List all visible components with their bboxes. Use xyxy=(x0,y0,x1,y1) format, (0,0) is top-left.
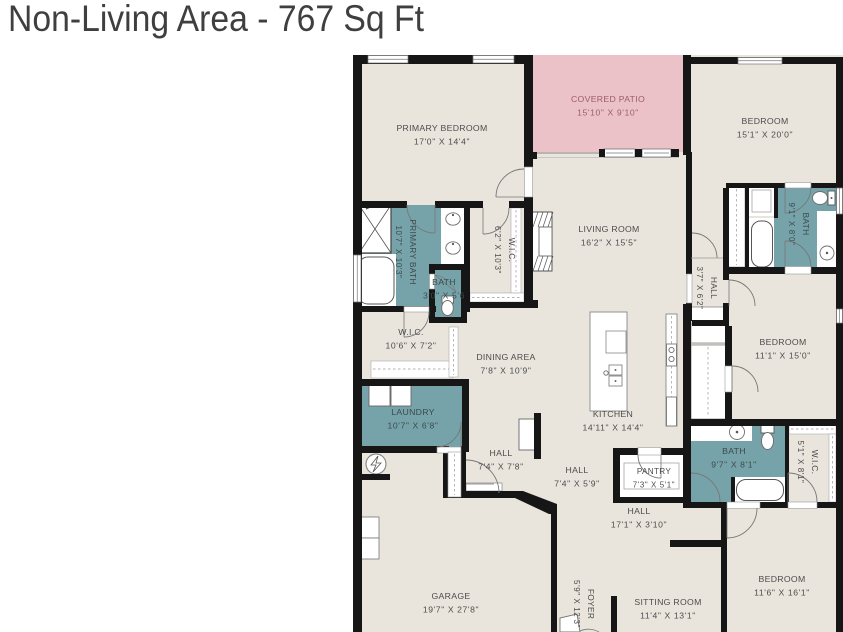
svg-text:9'1" X 8'0": 9'1" X 8'0" xyxy=(787,203,796,246)
svg-text:BEDROOM: BEDROOM xyxy=(760,337,807,347)
svg-text:15'1" X 20'0": 15'1" X 20'0" xyxy=(737,130,793,140)
svg-text:3'7" X 6'2": 3'7" X 6'2" xyxy=(695,267,704,310)
svg-text:16'2" X 15'5": 16'2" X 15'5" xyxy=(581,238,637,248)
svg-text:BATH: BATH xyxy=(432,277,456,287)
svg-text:LIVING ROOM: LIVING ROOM xyxy=(578,224,639,234)
svg-text:Non-Living Area - 767 Sq Ft: Non-Living Area - 767 Sq Ft xyxy=(8,0,425,39)
svg-text:HALL: HALL xyxy=(490,448,513,458)
svg-text:KITCHEN: KITCHEN xyxy=(593,409,633,419)
svg-text:14'11" X 14'4": 14'11" X 14'4" xyxy=(582,423,643,433)
svg-text:PRIMARY BATH: PRIMARY BATH xyxy=(408,219,418,285)
svg-text:9'7" X 8'1": 9'7" X 8'1" xyxy=(711,460,757,470)
svg-text:COVERED PATIO: COVERED PATIO xyxy=(571,94,645,104)
svg-text:FOYER: FOYER xyxy=(586,589,596,619)
svg-text:7'8" X 10'9": 7'8" X 10'9" xyxy=(481,366,532,376)
svg-text:3'0" X 5'6: 3'0" X 5'6 xyxy=(423,291,465,301)
svg-text:17'1" X 3'10": 17'1" X 3'10" xyxy=(611,520,667,530)
svg-text:W.I.C.: W.I.C. xyxy=(398,327,423,337)
svg-text:10'6" X 7'2": 10'6" X 7'2" xyxy=(386,341,437,351)
svg-text:11'4" X 13'1": 11'4" X 13'1" xyxy=(640,611,696,621)
svg-text:7'3" X 5'1": 7'3" X 5'1" xyxy=(633,481,675,490)
svg-text:11'6" X 16'1": 11'6" X 16'1" xyxy=(754,588,810,598)
svg-text:5'9" X 12'3": 5'9" X 12'3" xyxy=(572,580,581,628)
svg-text:PANTRY: PANTRY xyxy=(637,467,671,476)
svg-text:BEDROOM: BEDROOM xyxy=(759,574,806,584)
svg-text:GARAGE: GARAGE xyxy=(432,591,471,601)
svg-text:7'4" X 7'8": 7'4" X 7'8" xyxy=(478,462,524,472)
svg-text:6'2" X 10'3": 6'2" X 10'3" xyxy=(493,226,502,274)
svg-text:7'4" X 5'9": 7'4" X 5'9" xyxy=(554,479,600,489)
svg-text:HALL: HALL xyxy=(628,506,651,516)
svg-text:10'7" X 6'8": 10'7" X 6'8" xyxy=(388,421,439,431)
svg-text:5'1" X 8'1": 5'1" X 8'1" xyxy=(796,441,805,484)
svg-text:HALL: HALL xyxy=(566,465,589,475)
svg-text:17'0" X 14'4": 17'0" X 14'4" xyxy=(414,137,470,147)
svg-text:W.I.C.: W.I.C. xyxy=(507,238,517,263)
svg-text:LAUNDRY: LAUNDRY xyxy=(391,407,434,417)
svg-text:W.I.C.: W.I.C. xyxy=(810,450,820,475)
svg-text:11'1" X 15'0": 11'1" X 15'0" xyxy=(755,351,811,361)
svg-text:10'7" X 10'3": 10'7" X 10'3" xyxy=(394,225,403,278)
svg-text:BEDROOM: BEDROOM xyxy=(742,116,789,126)
svg-text:PRIMARY BEDROOM: PRIMARY BEDROOM xyxy=(396,123,487,133)
svg-text:BATH: BATH xyxy=(801,213,811,236)
svg-text:19'7" X 27'8": 19'7" X 27'8" xyxy=(423,605,479,615)
svg-text:DINING AREA: DINING AREA xyxy=(476,352,535,362)
svg-text:SITTING ROOM: SITTING ROOM xyxy=(634,597,701,607)
svg-text:HALL: HALL xyxy=(709,277,719,299)
svg-text:15'10" X 9'10": 15'10" X 9'10" xyxy=(577,108,639,118)
svg-text:BATH: BATH xyxy=(722,446,746,456)
